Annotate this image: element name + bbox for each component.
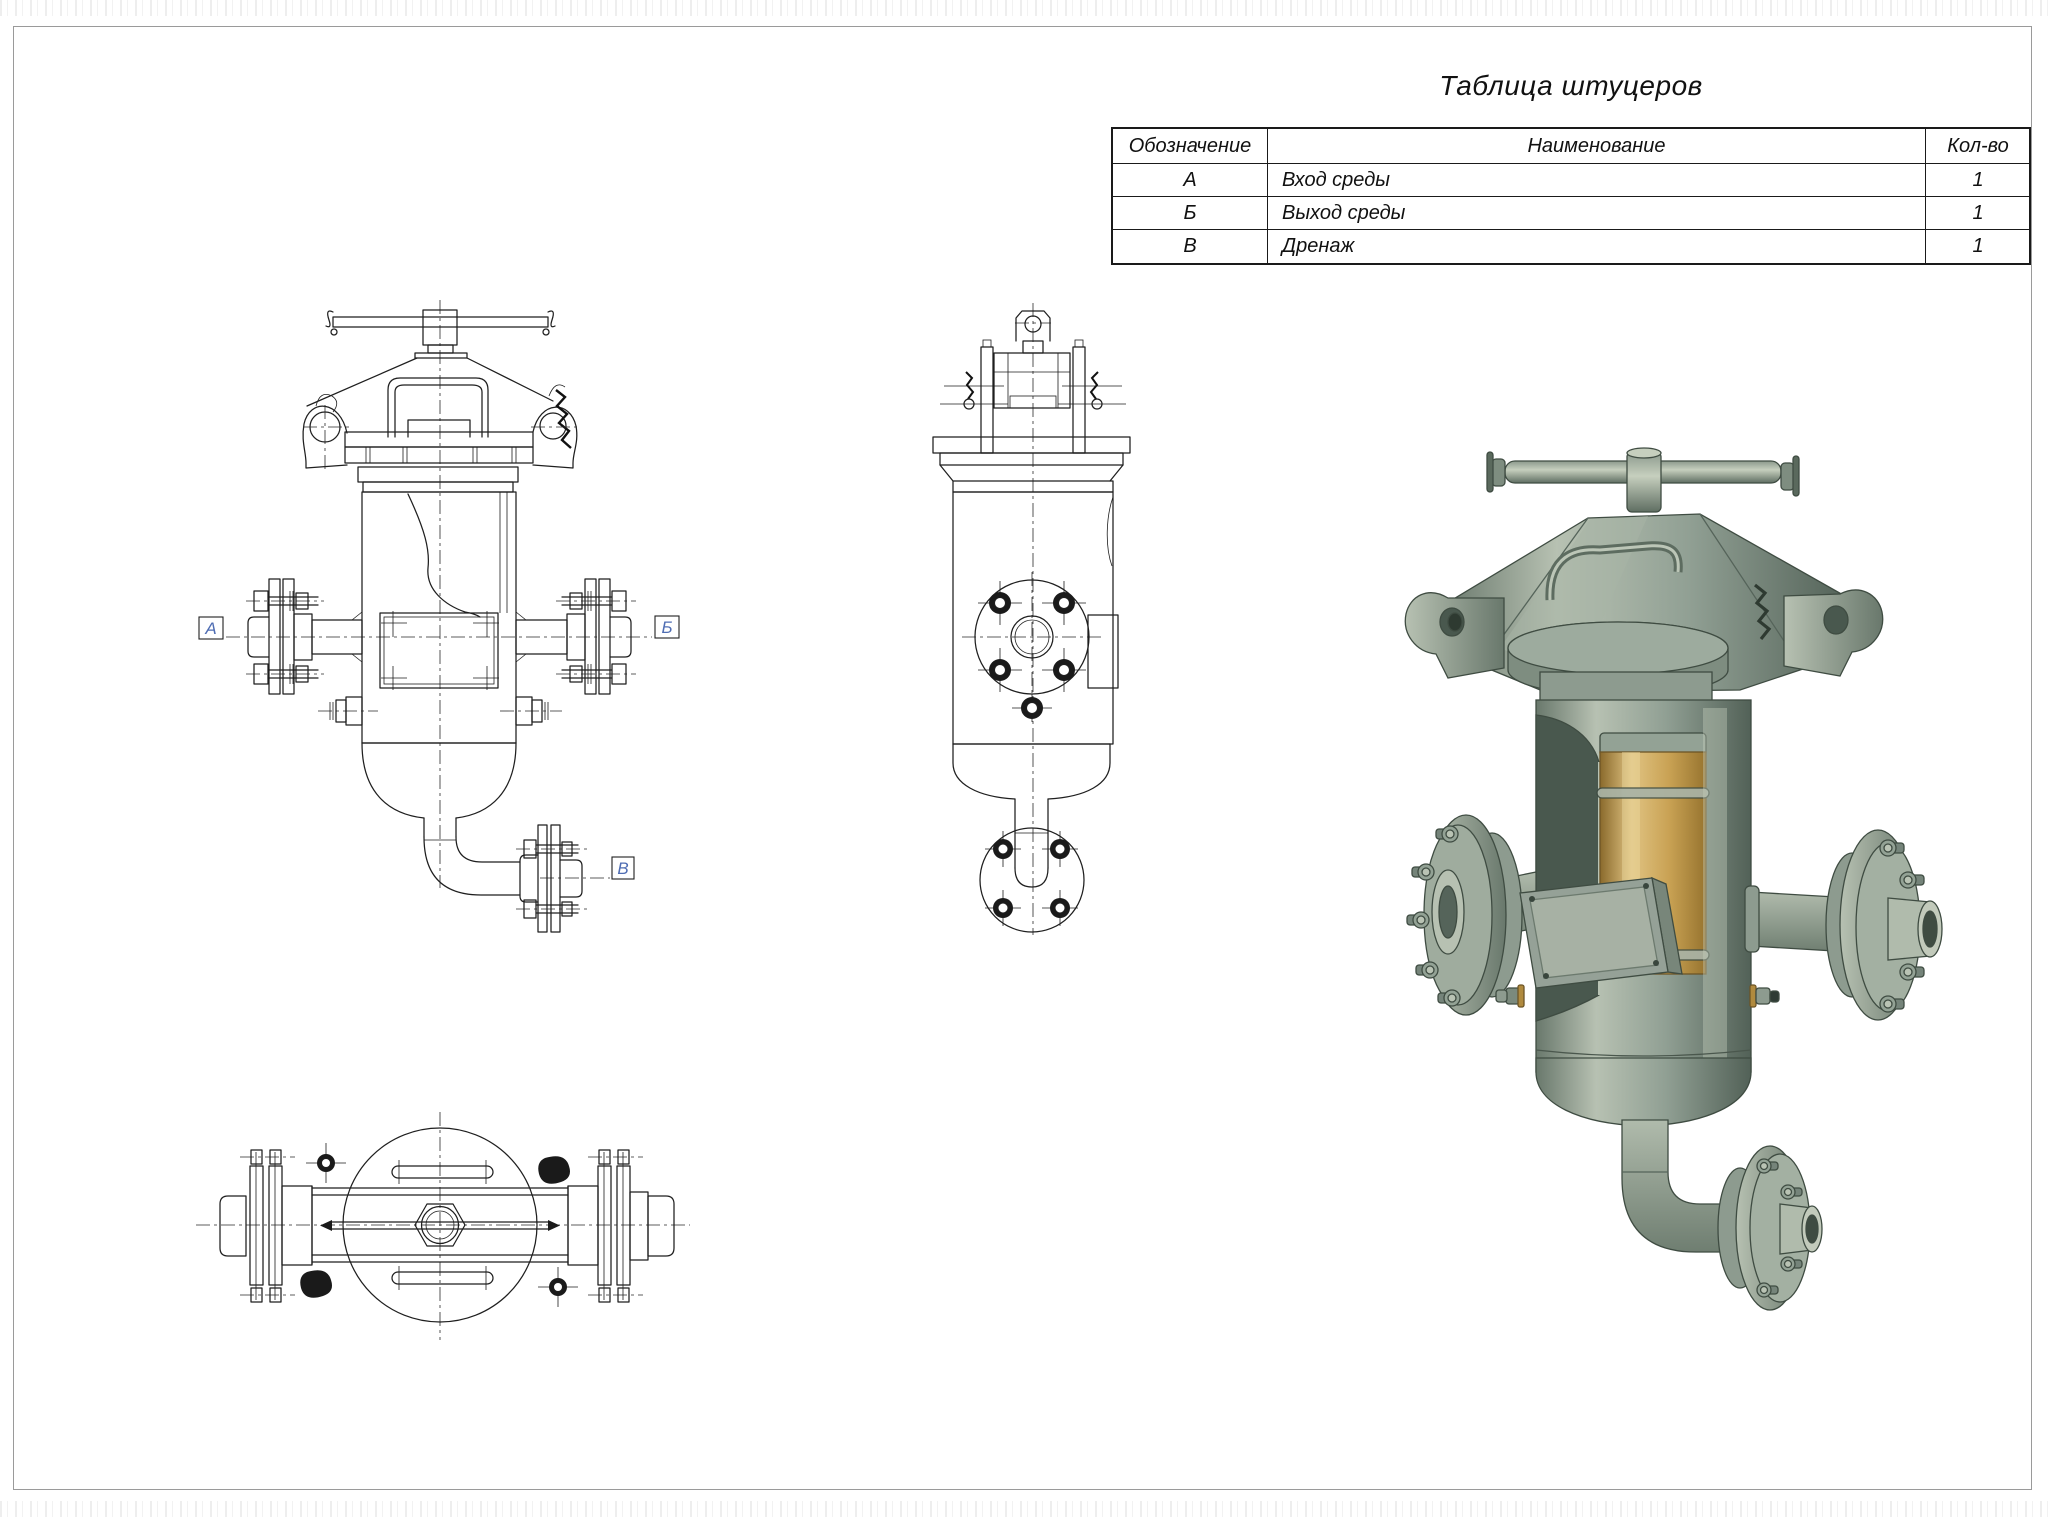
drain-flange-bolts bbox=[516, 840, 590, 918]
front-flange-face bbox=[975, 572, 1118, 722]
inlet-label: А bbox=[204, 619, 216, 638]
table-row: В Дренаж 1 bbox=[1113, 230, 2029, 263]
cover-flange-disc bbox=[1508, 622, 1728, 706]
lifting-lug-left bbox=[303, 394, 349, 472]
shell-body bbox=[362, 492, 516, 743]
drain-elbow-3d bbox=[1622, 1120, 1822, 1310]
flange-left bbox=[220, 1150, 312, 1302]
cell-qty: 1 bbox=[1926, 164, 2030, 197]
scan-noise-top bbox=[0, 0, 2048, 16]
table-header-row: Обозначение Наименование Кол-во bbox=[1113, 129, 2029, 164]
outlet-label: Б bbox=[661, 618, 672, 637]
header-qty: Кол-во bbox=[1926, 129, 2030, 164]
header-designation: Обозначение bbox=[1113, 129, 1268, 164]
cover-flange-stack bbox=[345, 432, 533, 492]
cell-name: Вход среды bbox=[1268, 164, 1926, 197]
table-row: Б Выход среды 1 bbox=[1113, 197, 2029, 230]
cell-designation: В bbox=[1113, 230, 1268, 263]
outlet-nozzle: Б bbox=[516, 579, 679, 694]
drain-pipe-and-flange bbox=[980, 799, 1084, 932]
top-view bbox=[185, 1085, 700, 1355]
handle-hub bbox=[1627, 452, 1661, 512]
filter-basket-section bbox=[380, 611, 499, 690]
drain-plug-right bbox=[1750, 985, 1779, 1007]
scan-noise-bottom bbox=[0, 1501, 2048, 1517]
side-view bbox=[920, 300, 1145, 945]
nameplate bbox=[1520, 878, 1682, 988]
lifting-lug-left bbox=[1405, 593, 1504, 678]
flange-right bbox=[568, 1150, 674, 1302]
front-view: А Б bbox=[190, 295, 700, 940]
inlet-nozzle: А bbox=[199, 579, 362, 694]
bottom-head bbox=[953, 744, 1110, 799]
3d-view bbox=[1385, 440, 1995, 1320]
table-row: А Вход среды 1 bbox=[1113, 164, 2029, 197]
drain-elbow: В bbox=[424, 825, 634, 932]
inlet-nozzle-3d bbox=[1407, 815, 1536, 1015]
centerlines bbox=[962, 303, 1104, 935]
header-name: Наименование bbox=[1268, 129, 1926, 164]
cell-qty: 1 bbox=[1926, 197, 2030, 230]
flange-bolts-bottom bbox=[246, 664, 324, 684]
cell-name: Дренаж bbox=[1268, 230, 1926, 263]
cell-designation: А bbox=[1113, 164, 1268, 197]
lifting-lug-right bbox=[531, 385, 577, 468]
bottom-head bbox=[362, 743, 516, 837]
t-handle bbox=[1487, 448, 1799, 512]
flange-bolts-top bbox=[246, 591, 324, 611]
cell-designation: Б bbox=[1113, 197, 1268, 230]
cover-cone bbox=[307, 358, 553, 437]
flange-bolt bbox=[985, 831, 1078, 926]
nozzle-table-title: Таблица штуцеров bbox=[1111, 70, 2031, 102]
drain-label: В bbox=[617, 859, 628, 878]
cover-flange bbox=[933, 437, 1130, 492]
t-handle bbox=[326, 310, 555, 358]
nozzle-table: Обозначение Наименование Кол-во А Вход с… bbox=[1111, 127, 2031, 265]
cell-name: Выход среды bbox=[1268, 197, 1926, 230]
cell-qty: 1 bbox=[1926, 230, 2030, 263]
centerlines bbox=[196, 1112, 690, 1340]
